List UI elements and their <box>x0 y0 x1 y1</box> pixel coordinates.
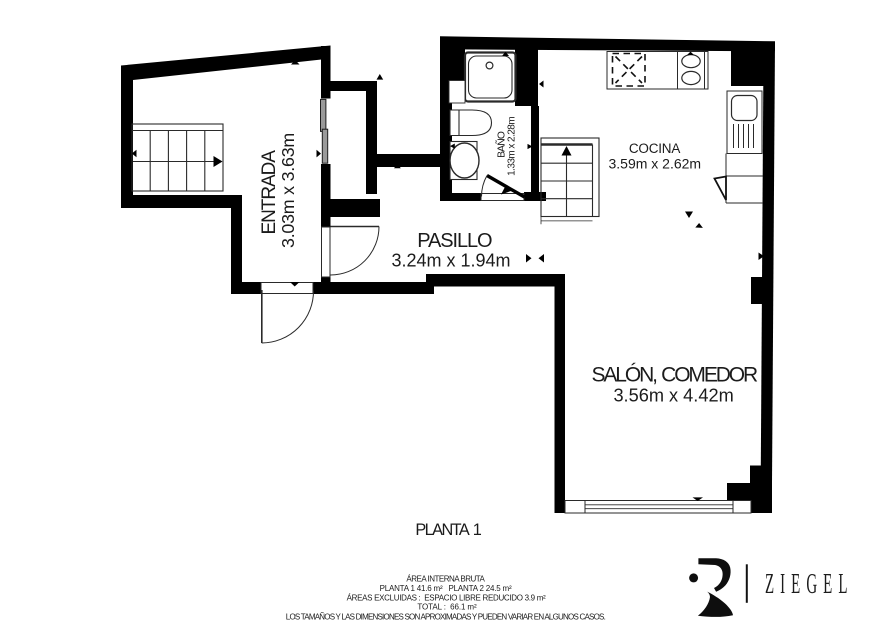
svg-text:1.33m x 2.28m: 1.33m x 2.28m <box>507 117 518 176</box>
svg-text:3.56m x 4.42m: 3.56m x 4.42m <box>613 385 733 405</box>
svg-text:COCINA: COCINA <box>629 141 680 156</box>
svg-text:LOS TAMAÑOS Y LAS DIMENSIONES: LOS TAMAÑOS Y LAS DIMENSIONES SON APROXI… <box>286 612 606 621</box>
svg-text:3.03m x 3.63m: 3.03m x 3.63m <box>278 133 298 248</box>
svg-text:ÁREAS EXCLUIDAS : ESPACIO LIB: ÁREAS EXCLUIDAS : ESPACIO LIBRE REDUCIDO… <box>347 594 546 603</box>
svg-text:PASILLO: PASILLO <box>417 230 492 252</box>
svg-text:ÁREA INTERNA BRUTA: ÁREA INTERNA BRUTA <box>406 574 485 583</box>
svg-text:PLANTA 1 41.6 m² PLANTA 2 24: PLANTA 1 41.6 m² PLANTA 2 24.5 m² <box>380 584 512 593</box>
svg-text:3.59m x 2.62m: 3.59m x 2.62m <box>608 156 701 172</box>
svg-text:TOTAL : 66.1 m²: TOTAL : 66.1 m² <box>417 602 477 611</box>
svg-text:PLANTA 1: PLANTA 1 <box>415 521 481 539</box>
svg-text:ZIEGEL: ZIEGEL <box>765 568 854 599</box>
svg-text:SALÓN, COMEDOR: SALÓN, COMEDOR <box>591 364 758 387</box>
svg-text:3.24m x 1.94m: 3.24m x 1.94m <box>391 250 510 270</box>
